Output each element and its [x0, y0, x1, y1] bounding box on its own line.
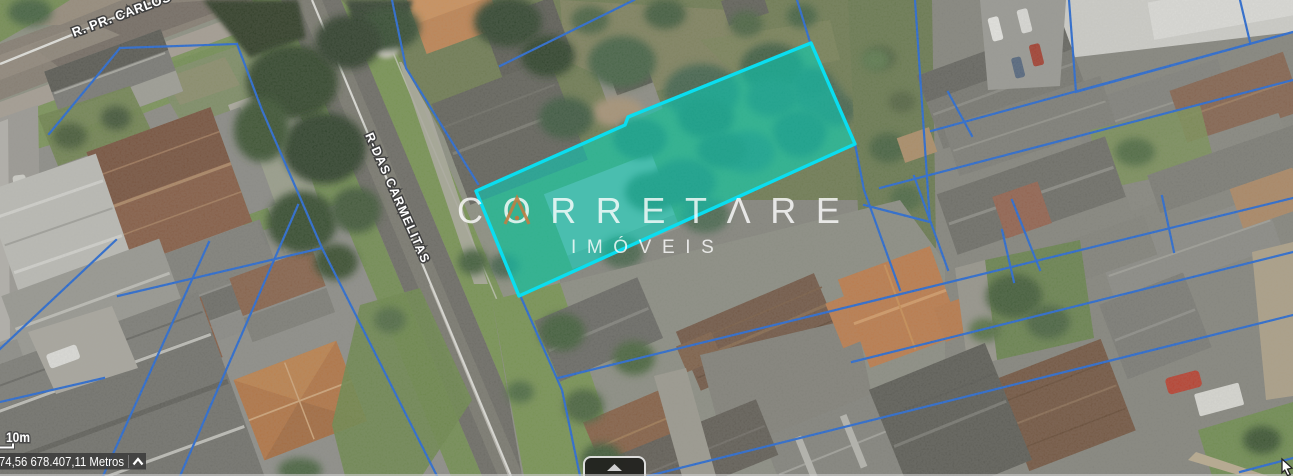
svg-text:10m: 10m: [6, 430, 30, 445]
svg-text:IMÓVEIS: IMÓVEIS: [571, 236, 724, 258]
svg-text:74,56 678.407,11 Metros: 74,56 678.407,11 Metros: [0, 454, 124, 469]
